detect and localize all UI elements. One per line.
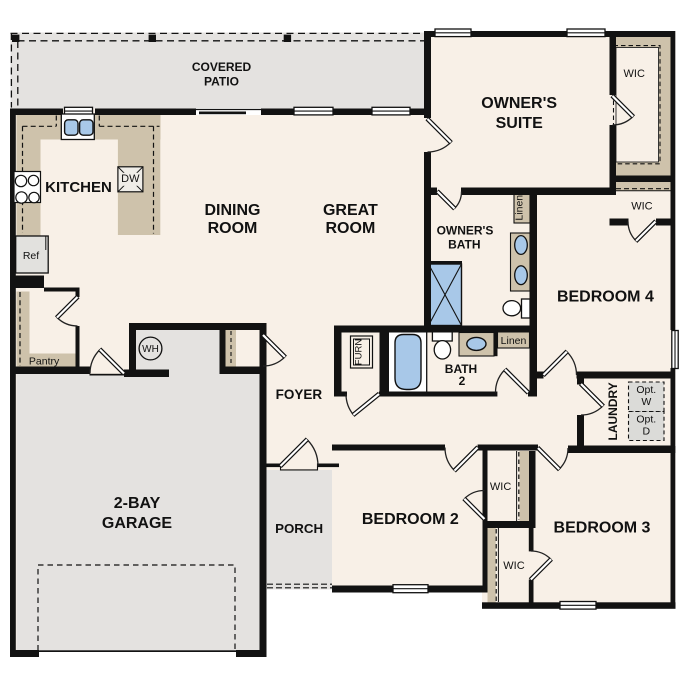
svg-text:D: D [643, 426, 651, 438]
svg-text:OWNER'S: OWNER'S [437, 223, 494, 237]
svg-text:W: W [641, 396, 651, 408]
svg-text:BEDROOM 3: BEDROOM 3 [554, 520, 651, 537]
svg-text:GREAT: GREAT [323, 202, 378, 219]
svg-text:ROOM: ROOM [326, 220, 376, 237]
svg-text:BEDROOM 4: BEDROOM 4 [557, 289, 654, 306]
svg-text:WIC: WIC [490, 481, 511, 493]
svg-text:OWNER'S: OWNER'S [481, 95, 557, 112]
svg-text:BATH: BATH [448, 237, 480, 251]
svg-text:PORCH: PORCH [275, 521, 323, 536]
svg-text:COVERED: COVERED [192, 60, 252, 74]
svg-text:DINING: DINING [205, 202, 261, 219]
svg-text:KITCHEN: KITCHEN [45, 179, 112, 196]
svg-text:FURN: FURN [354, 339, 365, 366]
svg-text:ROOM: ROOM [208, 220, 258, 237]
svg-text:GARAGE: GARAGE [102, 515, 173, 532]
svg-text:Opt.: Opt. [636, 414, 656, 426]
svg-text:Linen: Linen [513, 195, 525, 221]
svg-text:2: 2 [459, 374, 466, 388]
svg-text:Pantry: Pantry [29, 356, 60, 368]
svg-text:Ref: Ref [23, 250, 39, 262]
svg-text:2-BAY: 2-BAY [114, 495, 161, 512]
svg-text:WIC: WIC [624, 68, 645, 80]
svg-text:LAUNDRY: LAUNDRY [606, 382, 620, 440]
svg-text:Linen: Linen [501, 335, 527, 347]
svg-text:WH: WH [142, 344, 159, 355]
svg-text:FOYER: FOYER [276, 387, 323, 402]
svg-text:WIC: WIC [503, 560, 524, 572]
svg-text:BEDROOM 2: BEDROOM 2 [362, 511, 459, 528]
svg-text:Opt.: Opt. [636, 384, 656, 396]
svg-text:SUITE: SUITE [496, 115, 543, 132]
svg-text:DW: DW [121, 173, 140, 185]
svg-text:WIC: WIC [631, 201, 652, 213]
svg-text:PATIO: PATIO [204, 74, 239, 88]
